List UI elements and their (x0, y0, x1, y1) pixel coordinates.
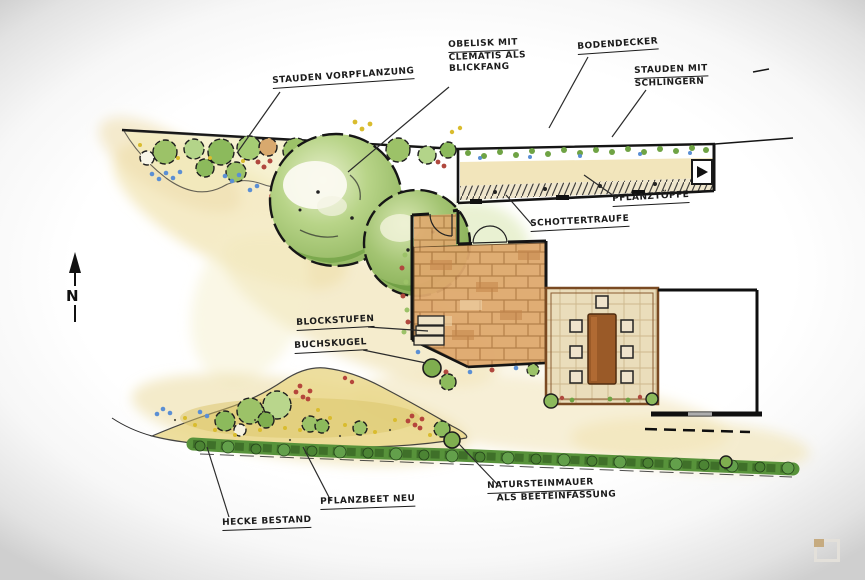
garden-plan-image: STAUDEN VORPFLANZUNG OBELISK MIT CLEMATI… (0, 0, 865, 580)
label-stauden-mit-schlingern: STAUDEN MIT SCHLINGERN (634, 63, 708, 90)
label-obelisk: OBELISK MIT CLEMATIS ALS BLICKFANG (448, 37, 527, 75)
label-natursteinmauer: NATURSTEINMAUER ALS BEETEINFASSUNG (487, 477, 616, 505)
box-ball (423, 359, 441, 377)
gallery-icon-cell (814, 539, 824, 547)
garden-plan-drawing (0, 0, 865, 580)
dining-terrace (544, 288, 658, 408)
compass-north-letter: N (66, 287, 79, 305)
gallery-icon[interactable] (814, 539, 840, 562)
walk-end-arrow (692, 160, 712, 184)
